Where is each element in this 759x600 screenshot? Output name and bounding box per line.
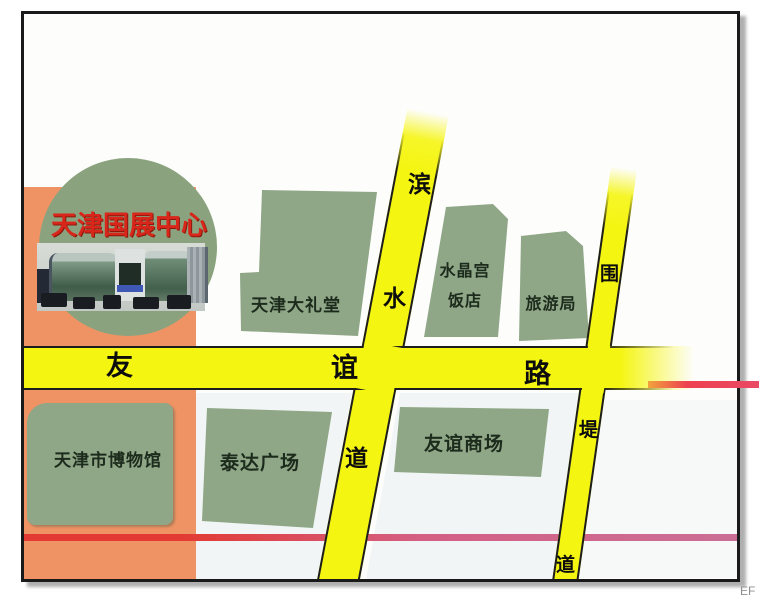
map-canvas: 天津国展中心 天津大礼堂 水晶宫 饭店 旅游局 天津市博物馆 泰达广场 友谊商场 xyxy=(0,0,759,600)
block-tianjin-museum: 天津市博物馆 xyxy=(27,403,173,525)
road-label-weidi-3: 道 xyxy=(556,556,575,575)
block-label: 泰达广场 xyxy=(202,448,318,475)
block-label: 水晶宫 xyxy=(427,257,503,281)
photo-foreground-shape xyxy=(167,295,191,309)
block-label: 友谊商场 xyxy=(394,429,534,456)
photo-foreground-shape xyxy=(133,297,159,309)
panel-east xyxy=(578,400,737,578)
photo-hall-right xyxy=(145,251,193,301)
block-label: 天津市博物馆 xyxy=(43,446,173,471)
road-label-binshui-1: 滨 xyxy=(408,174,431,197)
exhibition-center-photo xyxy=(37,243,205,311)
photo-foreground-shape xyxy=(41,293,67,307)
photo-foreground-shape xyxy=(103,295,121,309)
road-label-binshui-2: 水 xyxy=(383,288,406,311)
block-teda-plaza: 泰达广场 xyxy=(202,408,332,528)
photo-center-pillar xyxy=(115,249,145,301)
block-label: 饭店 xyxy=(427,287,503,311)
road-label-youyi-3: 路 xyxy=(524,361,551,388)
photo-blue-stripe xyxy=(117,285,143,292)
road-label-weidi-1: 围 xyxy=(600,265,619,284)
pink-rail-line xyxy=(24,534,737,541)
photo-window xyxy=(119,263,141,285)
road-label-youyi-2: 谊 xyxy=(331,355,358,382)
map-frame: 天津国展中心 天津大礼堂 水晶宫 饭店 旅游局 天津市博物馆 泰达广场 友谊商场 xyxy=(21,11,740,582)
red-road-extension-line xyxy=(648,381,759,388)
block-friendship-mall: 友谊商场 xyxy=(394,407,549,477)
block-label: 天津大礼堂 xyxy=(248,291,344,316)
photo-foreground-shape xyxy=(73,297,95,309)
block-tourism-bureau: 旅游局 xyxy=(519,231,589,341)
inset-title: 天津国展中心 xyxy=(38,205,220,242)
corner-watermark: EF xyxy=(740,584,755,598)
road-label-weidi-2: 堤 xyxy=(579,421,598,440)
road-label-binshui-3: 道 xyxy=(345,448,368,471)
block-tianjin-great-hall: 天津大礼堂 xyxy=(240,190,380,337)
road-label-youyi-1: 友 xyxy=(106,353,133,380)
block-crystal-palace-hotel: 水晶宫 饭店 xyxy=(424,204,508,337)
block-label: 旅游局 xyxy=(519,290,583,314)
